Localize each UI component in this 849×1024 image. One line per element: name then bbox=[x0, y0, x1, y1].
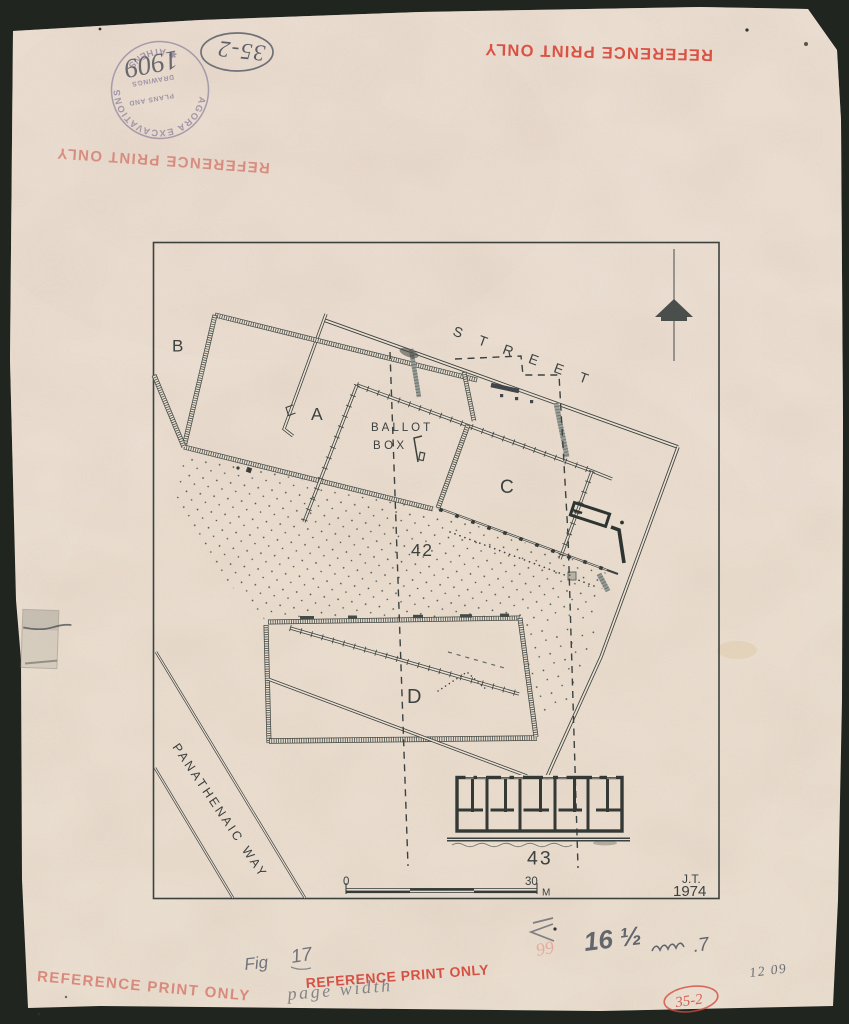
svg-text:M: M bbox=[542, 888, 550, 899]
svg-text:35-2: 35-2 bbox=[216, 36, 268, 66]
svg-text:0: 0 bbox=[343, 876, 349, 888]
svg-text:D: D bbox=[407, 686, 421, 708]
svg-text:Fig: Fig bbox=[243, 953, 269, 974]
svg-text:B: B bbox=[172, 337, 183, 356]
svg-text:C: C bbox=[500, 477, 514, 498]
svg-text:BALLOT: BALLOT bbox=[371, 422, 433, 434]
svg-text:1974: 1974 bbox=[673, 883, 706, 900]
svg-text:43: 43 bbox=[527, 848, 553, 870]
svg-text:42: 42 bbox=[411, 540, 433, 560]
svg-text:30: 30 bbox=[525, 876, 538, 888]
svg-text:A: A bbox=[311, 404, 323, 424]
svg-text:BOX: BOX bbox=[373, 440, 408, 452]
